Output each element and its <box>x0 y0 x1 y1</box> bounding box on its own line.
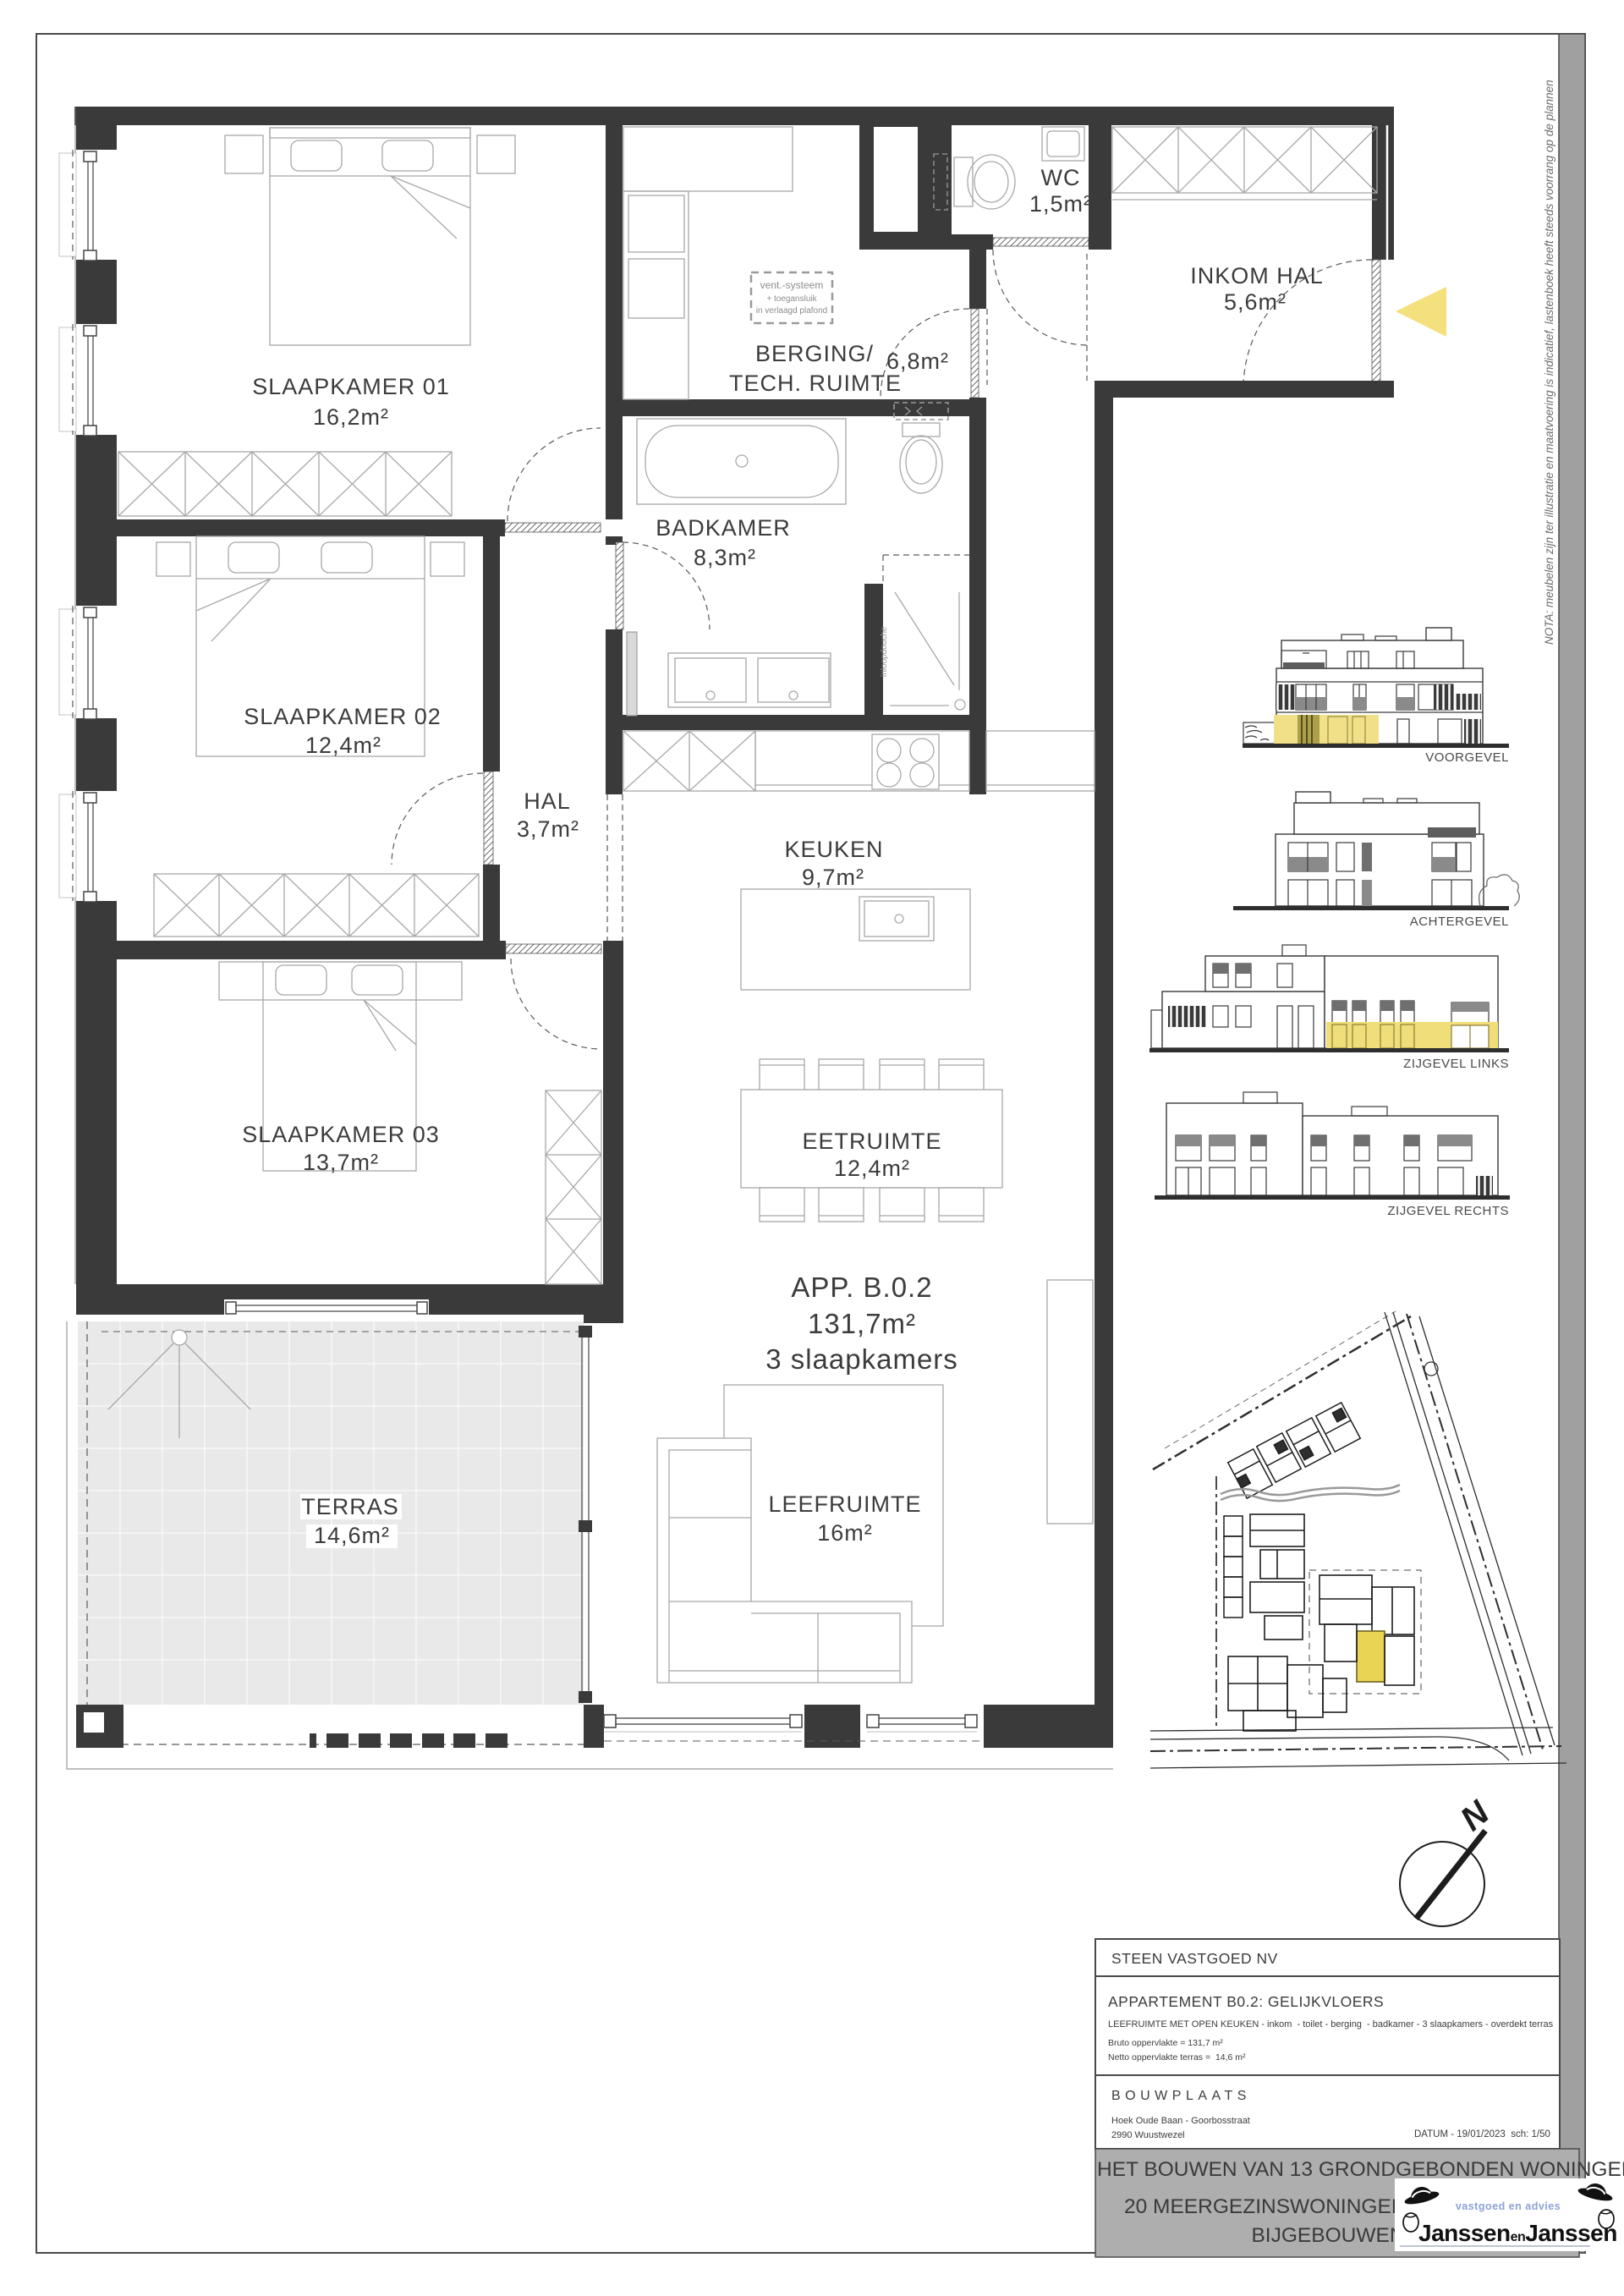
svg-text:inloopdouche: inloopdouche <box>880 626 889 677</box>
svg-text:KEUKEN: KEUKEN <box>784 837 883 862</box>
svg-text:12,4m²: 12,4m² <box>834 1156 910 1181</box>
svg-text:BERGING/: BERGING/ <box>755 341 874 366</box>
svg-text:13,7m²: 13,7m² <box>303 1150 379 1175</box>
svg-text:SLAAPKAMER 02: SLAAPKAMER 02 <box>244 704 442 729</box>
svg-text:SLAAPKAMER 03: SLAAPKAMER 03 <box>242 1122 440 1147</box>
svg-text:BADKAMER: BADKAMER <box>656 515 791 541</box>
svg-text:2990 Wuustwezel: 2990 Wuustwezel <box>1111 2130 1185 2140</box>
svg-text:Bruto oppervlakte = 131,7 m²: Bruto oppervlakte = 131,7 m² <box>1108 2038 1223 2048</box>
svg-text:SLAAPKAMER 01: SLAAPKAMER 01 <box>252 374 450 399</box>
svg-text:TECH. RUIMTE: TECH. RUIMTE <box>729 371 902 396</box>
svg-text:131,7m²: 131,7m² <box>808 1308 916 1339</box>
svg-text:APP. B.0.2: APP. B.0.2 <box>791 1272 932 1303</box>
svg-text:WC: WC <box>1041 165 1081 190</box>
svg-text:16m²: 16m² <box>817 1520 873 1546</box>
svg-text:STEEN VASTGOED NV: STEEN VASTGOED NV <box>1111 1950 1278 1967</box>
svg-text:Hoek Oude Baan - Goorbosstraat: Hoek Oude Baan - Goorbosstraat <box>1111 2116 1250 2126</box>
svg-text:vastgoed en advies: vastgoed en advies <box>1456 2200 1561 2212</box>
svg-text:HET BOUWEN VAN 13 GRONDGEBONDE: HET BOUWEN VAN 13 GRONDGEBONDEN WONINGEN <box>1097 2158 1624 2181</box>
svg-text:vent.-systeem: vent.-systeem <box>760 279 824 291</box>
svg-text:16,2m²: 16,2m² <box>313 404 389 430</box>
svg-text:3,7m²: 3,7m² <box>517 816 579 842</box>
svg-text:ZIJGEVEL RECHTS: ZIJGEVEL RECHTS <box>1387 1204 1509 1218</box>
svg-text:6,8m²: 6,8m² <box>886 349 949 374</box>
svg-text:BOUWPLAATS: BOUWPLAATS <box>1111 2089 1251 2103</box>
svg-text:in verlaagd plafond: in verlaagd plafond <box>756 306 828 316</box>
svg-text:12,4m²: 12,4m² <box>305 733 381 758</box>
svg-text:ACHTERGEVEL: ACHTERGEVEL <box>1410 915 1509 929</box>
svg-text:ZIJGEVEL LINKS: ZIJGEVEL LINKS <box>1403 1057 1509 1071</box>
svg-text:DATUM - 19/01/2023 sch: 1/50: DATUM - 19/01/2023 sch: 1/50 <box>1414 2129 1550 2139</box>
svg-text:VOORGEVEL: VOORGEVEL <box>1425 750 1509 765</box>
svg-text:5,6m²: 5,6m² <box>1224 289 1287 315</box>
svg-text:1,5m²: 1,5m² <box>1029 191 1092 217</box>
svg-text:9,7m²: 9,7m² <box>802 865 864 890</box>
svg-text:INKOM HAL: INKOM HAL <box>1190 263 1324 288</box>
svg-text:3 slaapkamers: 3 slaapkamers <box>765 1343 958 1375</box>
svg-text:APPARTEMENT B0.2: GELIJKVLOERS: APPARTEMENT B0.2: GELIJKVLOERS <box>1108 1993 1384 2010</box>
svg-text:HAL: HAL <box>524 788 571 814</box>
svg-text:BIJGEBOUWEN: BIJGEBOUWEN <box>1251 2224 1404 2247</box>
svg-text:14,6m²: 14,6m² <box>314 1523 390 1548</box>
svg-text:Netto oppervlakte terras = 14: Netto oppervlakte terras = 14,6 m² <box>1108 2052 1246 2063</box>
svg-text:8,3m²: 8,3m² <box>694 545 756 570</box>
svg-text:TERRAS: TERRAS <box>301 1494 399 1519</box>
svg-text:EETRUIMTE: EETRUIMTE <box>802 1129 941 1154</box>
svg-text:LEEFRUIMTE: LEEFRUIMTE <box>768 1491 921 1517</box>
svg-text:NOTA: meubelen zijn ter illust: NOTA: meubelen zijn ter illustratie en m… <box>1543 80 1555 645</box>
svg-text:+ toegansluik: + toegansluik <box>766 294 817 304</box>
svg-text:LEEFRUIMTE MET OPEN KEUKEN - i: LEEFRUIMTE MET OPEN KEUKEN - inkom - toi… <box>1108 2019 1554 2030</box>
